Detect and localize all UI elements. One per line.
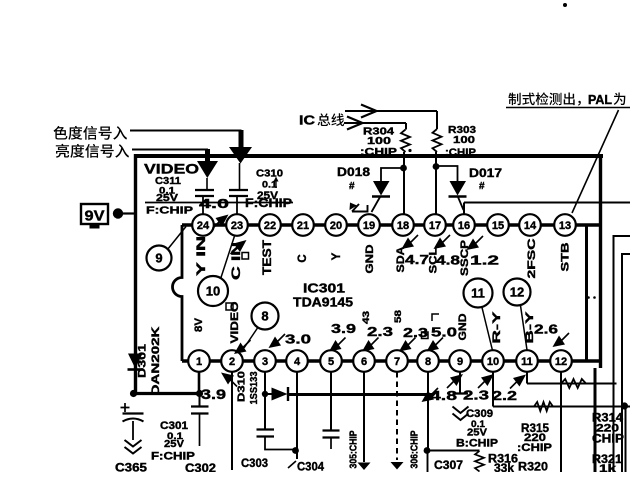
svg-text::CHIP: :CHIP xyxy=(445,147,476,159)
svg-text:2: 2 xyxy=(229,356,235,368)
svg-text:Y: Y xyxy=(331,252,343,260)
svg-text:F:CHIP: F:CHIP xyxy=(151,451,195,463)
svg-text:3.9: 3.9 xyxy=(331,321,356,336)
svg-text:100: 100 xyxy=(453,134,475,146)
svg-text:21: 21 xyxy=(297,220,309,232)
svg-text:25V: 25V xyxy=(257,190,279,202)
svg-text:4.7: 4.7 xyxy=(405,253,429,267)
svg-text:#: # xyxy=(349,181,355,192)
svg-text:8V: 8V xyxy=(193,317,205,332)
svg-text:IC301: IC301 xyxy=(303,282,345,296)
svg-text:305:CHIP: 305:CHIP xyxy=(348,431,360,469)
svg-text:TDA9145: TDA9145 xyxy=(293,296,353,310)
svg-text:CHIP: CHIP xyxy=(592,434,624,446)
svg-text:1: 1 xyxy=(196,356,202,368)
svg-text:1.2: 1.2 xyxy=(470,254,499,268)
svg-text:C310: C310 xyxy=(256,168,283,180)
svg-text:10: 10 xyxy=(487,356,499,368)
svg-text:R320: R320 xyxy=(518,460,548,473)
svg-text:8: 8 xyxy=(425,356,431,368)
svg-text:C303: C303 xyxy=(241,456,268,470)
svg-text:F:CHIP: F:CHIP xyxy=(146,205,193,217)
svg-text:6: 6 xyxy=(361,356,367,368)
svg-text:#: # xyxy=(479,181,485,192)
svg-text:23: 23 xyxy=(231,220,243,232)
svg-text:2FSC: 2FSC xyxy=(526,238,538,278)
svg-text:25V: 25V xyxy=(164,438,184,450)
svg-text:9: 9 xyxy=(155,251,162,266)
svg-text:GND: GND xyxy=(364,244,376,273)
svg-text::CHIP: :CHIP xyxy=(360,146,397,158)
svg-text:C307: C307 xyxy=(434,458,463,472)
svg-text:2.2: 2.2 xyxy=(492,388,517,403)
svg-text:43: 43 xyxy=(361,311,372,324)
svg-text:10: 10 xyxy=(206,284,220,299)
svg-text:4: 4 xyxy=(294,356,301,368)
svg-text:15: 15 xyxy=(492,220,504,232)
svg-text:5.0: 5.0 xyxy=(431,325,457,340)
svg-text:Y IN: Y IN xyxy=(196,236,208,276)
svg-text:VIDEO: VIDEO xyxy=(229,301,241,344)
svg-text:9V: 9V xyxy=(85,208,105,225)
svg-text:20: 20 xyxy=(330,220,342,232)
svg-text:GND: GND xyxy=(457,313,469,340)
svg-text:PAL: PAL xyxy=(588,93,612,107)
svg-text:DAN202K: DAN202K xyxy=(150,326,162,395)
svg-text:17: 17 xyxy=(429,220,441,232)
svg-text:13: 13 xyxy=(559,220,571,232)
svg-text:5: 5 xyxy=(328,356,334,368)
svg-text:19: 19 xyxy=(363,220,375,232)
svg-text::CHIP: :CHIP xyxy=(517,442,552,454)
svg-text:3.0: 3.0 xyxy=(285,332,311,347)
svg-text:D018: D018 xyxy=(337,167,371,179)
svg-text:2.6: 2.6 xyxy=(534,323,558,337)
svg-text:C304: C304 xyxy=(297,460,324,473)
svg-text:D310: D310 xyxy=(236,371,248,402)
svg-text:14: 14 xyxy=(524,220,537,232)
svg-text:18: 18 xyxy=(397,220,409,232)
svg-text:3: 3 xyxy=(262,356,268,368)
svg-text:33k: 33k xyxy=(494,463,515,472)
svg-text:STB: STB xyxy=(559,242,571,271)
svg-text:58: 58 xyxy=(393,310,404,323)
svg-text:9: 9 xyxy=(457,356,463,368)
svg-text:8: 8 xyxy=(261,309,268,324)
svg-text:22: 22 xyxy=(264,220,276,232)
svg-text:TEST: TEST xyxy=(262,240,274,275)
svg-text:11: 11 xyxy=(521,356,533,368)
svg-text:7: 7 xyxy=(394,356,400,368)
svg-text:16: 16 xyxy=(458,220,470,232)
svg-text:2.3: 2.3 xyxy=(367,324,393,339)
svg-text:4.8: 4.8 xyxy=(436,254,460,268)
svg-text:C: C xyxy=(297,254,309,262)
svg-text:4.8: 4.8 xyxy=(430,388,457,403)
svg-text:C302: C302 xyxy=(185,463,216,472)
svg-text:306:CHIP: 306:CHIP xyxy=(409,431,421,469)
svg-text:2.3: 2.3 xyxy=(463,388,489,403)
svg-text:1SS133: 1SS133 xyxy=(248,371,260,404)
svg-text:IC: IC xyxy=(299,114,315,128)
svg-text:24: 24 xyxy=(197,220,210,232)
svg-text:D017: D017 xyxy=(469,166,502,180)
svg-text:12: 12 xyxy=(510,285,524,300)
svg-text:1k: 1k xyxy=(599,463,617,472)
svg-text:11: 11 xyxy=(471,286,485,301)
svg-text:R-Y: R-Y xyxy=(491,310,503,343)
svg-text:C365: C365 xyxy=(115,463,148,473)
svg-text:12: 12 xyxy=(555,356,567,368)
svg-text:3.9: 3.9 xyxy=(201,387,226,402)
svg-text:B:CHIP: B:CHIP xyxy=(456,438,498,450)
